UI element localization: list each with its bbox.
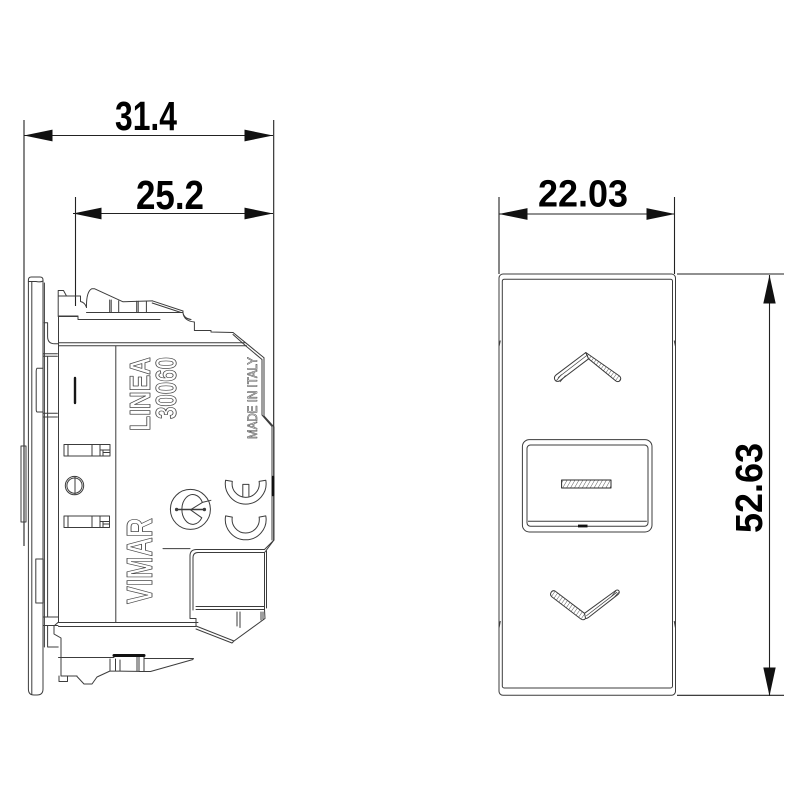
svg-text:MADE IN ITALY: MADE IN ITALY — [245, 357, 260, 439]
svg-text:VIMAR: VIMAR — [119, 518, 160, 604]
svg-text:25.2: 25.2 — [136, 172, 204, 218]
svg-text:31.4: 31.4 — [115, 93, 177, 139]
svg-text:30060: 30060 — [151, 357, 183, 419]
svg-text:52.63: 52.63 — [729, 443, 771, 533]
svg-text:22.03: 22.03 — [538, 174, 628, 216]
